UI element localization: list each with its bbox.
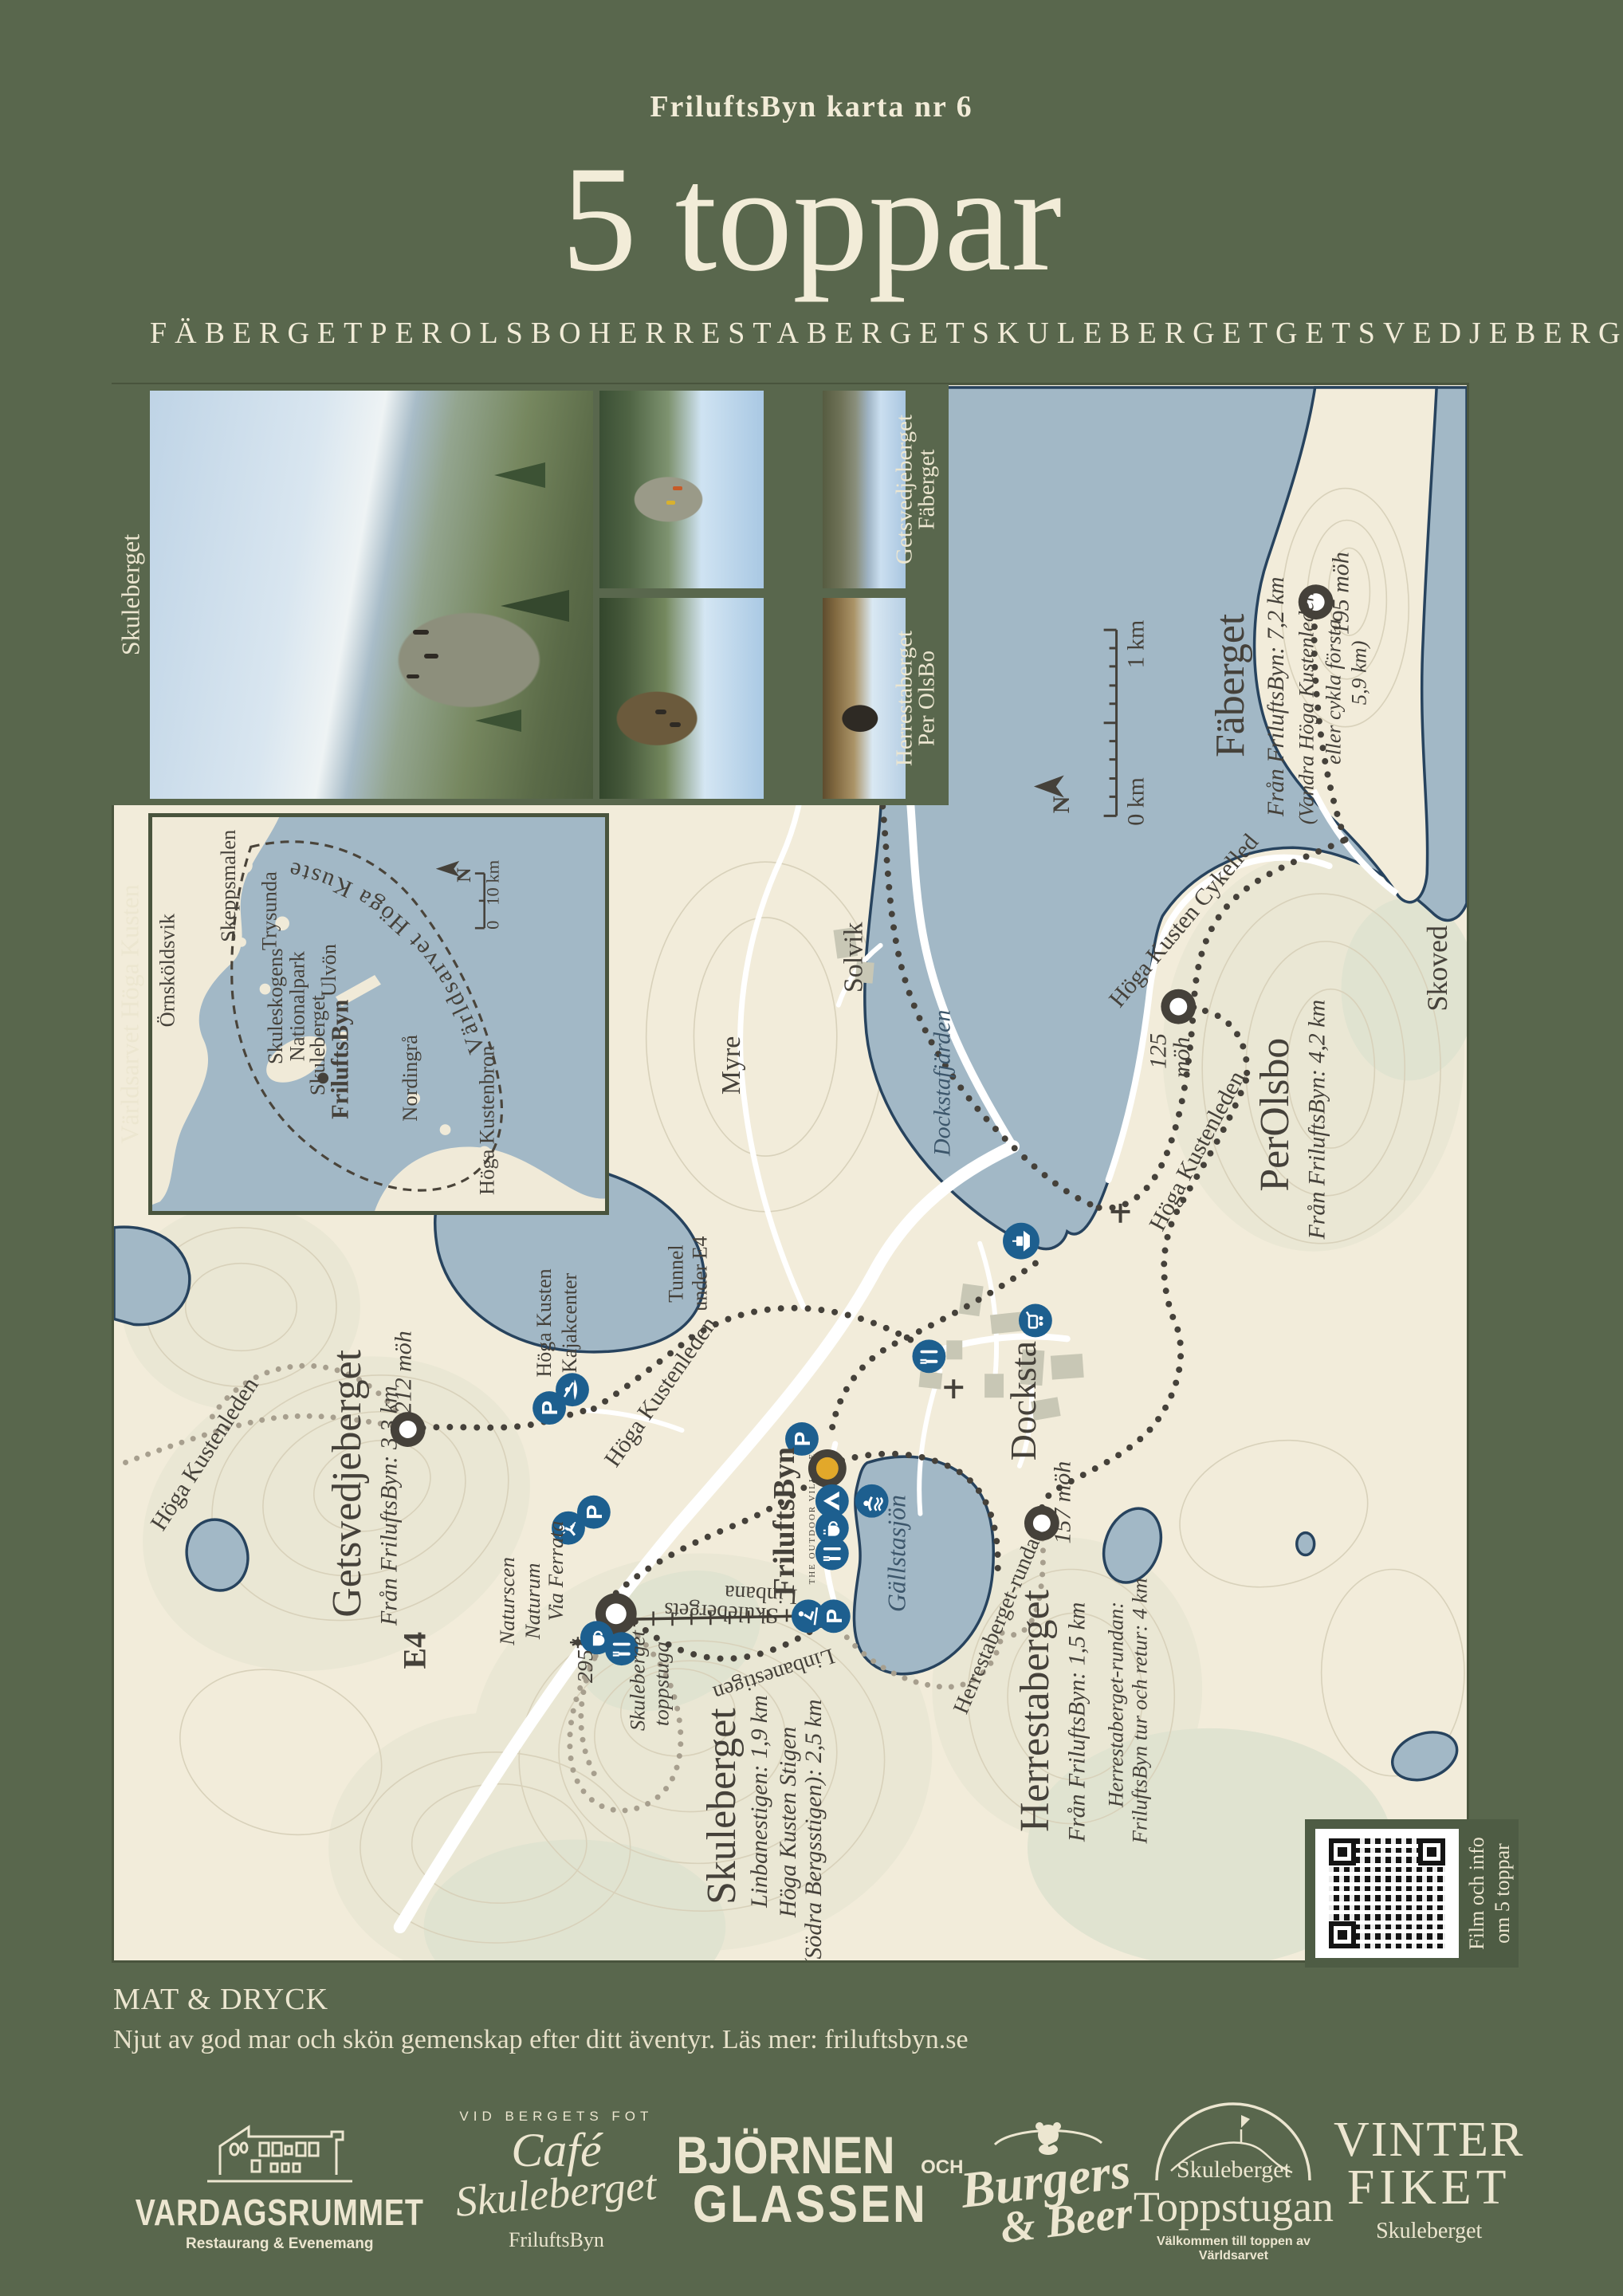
people-silhouette (655, 710, 666, 714)
label-kajak1: Höga Kusten (532, 1268, 556, 1377)
qr-caption-line2: om 5 toppar (1491, 1843, 1515, 1944)
label-herrestaberget-loop2: FriluftsByn tur och retur: 4 km (1127, 1578, 1151, 1844)
logo-cafe-arc: VID BERGETS FOT (459, 2109, 653, 2125)
photo-getsvedjeberget (599, 391, 764, 588)
label-skuleberget-info2: Höga Kusten Stigen (775, 1727, 801, 1918)
peak-name-getsvedjeberget: GETSVEDJEBERGET (1275, 316, 1623, 351)
logo-cafe-script2: Skuleberget (454, 2162, 659, 2224)
logo-toppstugan-name: Toppstugan (1134, 2184, 1334, 2230)
logo-bjornen-line2: GLASSEN (693, 2179, 928, 2228)
label-perolsbo: PerOlsbo (1252, 1038, 1298, 1192)
sponsor-logos: VARDAGSRUMMET Restaurang & Evenemang VID… (104, 2081, 1519, 2280)
label-herrestaberget-dist: Från FriluftsByn: 1,5 km (1064, 1602, 1091, 1843)
label-kajak2: Kajakcenter (558, 1272, 581, 1373)
logo-toppstugan: Skuleberget Toppstugan Välkommen till to… (1134, 2097, 1334, 2263)
label-e4: E4 (397, 1632, 433, 1669)
svg-text:P: P (537, 1401, 562, 1416)
label-perolsbo-elev2: möh (1169, 1037, 1195, 1078)
label-herrestaberget: Herrestaberget (1012, 1589, 1058, 1832)
label-perolsbo-elev1: 125 (1145, 1033, 1171, 1069)
label-skuleberget-info1: Linbanestigen: 1,9 km (746, 1695, 772, 1909)
peak-name-row: FÄBERGET PEROLSBO HERRESTABERGET SKULEBE… (150, 316, 1473, 351)
hiker-silhouette (413, 630, 429, 635)
logo-vardagsrummet: VARDAGSRUMMET Restaurang & Evenemang (104, 2108, 455, 2253)
restaurant-icon (815, 1537, 849, 1571)
tree-silhouette (501, 590, 569, 622)
label-faberget-dist: Från FriluftsByn: 7,2 km (1263, 577, 1289, 818)
peak-name-perolsbo: PEROLSBO (370, 316, 588, 351)
tree-silhouette (475, 710, 521, 732)
inset-label-nordingra: Nordingrå (398, 1035, 422, 1122)
label-naturscen1: Naturscen (495, 1557, 519, 1646)
logo-burgers-beer: Burgers & Beer (963, 2117, 1133, 2243)
logo-vardagsrummet-name: VARDAGSRUMMET (136, 2191, 424, 2234)
logo-toppstugan-top: Skuleberget (1177, 2156, 1291, 2184)
poster: { "poster": { "kicker": "FriluftsByn kar… (0, 0, 1623, 2296)
label-friluftsbyn: FriluftsByn (768, 1447, 801, 1596)
inset-map-svg: Världsarvet Höga Kusten N 10 km 0 Örnskö… (152, 817, 605, 1211)
inset-overview: Världsarvet Höga Kusten Världsarvet Höga… (112, 813, 609, 1217)
label-herrestaberget-elev: 157 möh (1050, 1461, 1076, 1544)
photo-label-skuleberget: Skuleberget (116, 534, 146, 655)
label-faberget-note1: (Vandra Höga Kustenleden (1295, 591, 1318, 824)
logo-toppstugan-tagline: Välkommen till toppen av Världsarvet (1134, 2235, 1334, 2263)
logo-vinterfiket: VINTER FIKET Skuleberget (1334, 2117, 1524, 2244)
inset-label-ulvon: Ulvön (316, 944, 340, 997)
inset-side-label: Världsarvet Höga Kusten (116, 884, 145, 1143)
inset-map: Världsarvet Höga Kusten N 10 km 0 Örnskö… (148, 813, 609, 1215)
label-toppstuga2: toppstuga (650, 1641, 674, 1726)
people-silhouette (670, 722, 681, 727)
parking-icon: P (817, 1599, 851, 1633)
qr-finder (1329, 1921, 1356, 1948)
inset-label-skuleskogens1: Skuleskogens (263, 948, 287, 1063)
climber-silhouette (673, 486, 682, 490)
inset-label-skeppsmalen: Skeppsmalen (216, 830, 240, 942)
logo-bjornen-och-glassen: BJÖRNEN OCH GLASSEN (657, 2133, 963, 2228)
qr-finder (1418, 1838, 1445, 1866)
label-myre: Myre (717, 1036, 746, 1095)
store-icon (1019, 1304, 1052, 1338)
logo-vardagsrummet-tagline: Restaurang & Evenemang (186, 2235, 373, 2253)
ferry-icon (1003, 1223, 1039, 1260)
label-tunnel2: under E4 (688, 1236, 711, 1311)
vardagsrummet-building-icon (204, 2108, 356, 2191)
inset-label-ornskoldsvik: Örnsköldsvik (155, 913, 179, 1027)
logo-vinterfiket-line2: FIKET (1347, 2163, 1511, 2212)
footer-heading: MAT & DRYCK (113, 1982, 328, 2017)
logo-cafe-skuleberget: VID BERGETS FOT Café Skuleberget Friluft… (455, 2109, 657, 2252)
label-friluftsbyn-sub: THE OUTDOOR VILLAGE (808, 1453, 817, 1584)
hiker-silhouette (424, 654, 438, 659)
label-skuleberget: Skuleberget (699, 1708, 745, 1905)
label-herrestaberget-loop1: Herrestaberget-rundan: (1104, 1602, 1128, 1808)
logo-vinterfiket-sub: Skuleberget (1376, 2219, 1482, 2244)
label-tunnel1: Tunnel (664, 1244, 687, 1303)
marker-perolsbo (1161, 989, 1196, 1024)
label-dockstafjarden: Dockstafjärden (929, 1010, 955, 1157)
qr-finder (1329, 1838, 1356, 1866)
label-skuleberget-info3: (Södra Bergsstigen): 2,5 km (800, 1699, 827, 1960)
peak-name-skuleberget: SKULEBERGET (973, 316, 1275, 351)
label-solvik: Solvik (839, 922, 869, 993)
inset-label-friluftsbyn: FriluftsByn (327, 1000, 354, 1119)
qr-panel: Film och info om 5 toppar (1305, 1819, 1519, 1968)
footer-body: Njut av god mar och skön gemenskap efter… (113, 2025, 969, 2055)
logo-cafe-sub: FriluftsByn (509, 2228, 604, 2252)
logo-vinterfiket-line1: VINTER (1334, 2117, 1524, 2163)
inset-label-trysunda: Trysunda (257, 871, 281, 950)
label-faberget-note2: eller cykla första (1322, 619, 1346, 765)
peak-name-faberget: FÄBERGET (150, 316, 370, 351)
inset-scale-min: 0 (482, 921, 502, 930)
hiker-silhouette (407, 674, 419, 678)
qr-code (1329, 1838, 1445, 1948)
inset-scale-max: 10 km (482, 859, 502, 905)
qr-card (1315, 1829, 1459, 1958)
map-north-label: N (1048, 796, 1075, 813)
photo-skuleberget (150, 391, 593, 799)
logo-cafe-script1: Café (511, 2129, 601, 2171)
label-skuleberget-elev: 295 (573, 1649, 598, 1683)
logo-bjornen-line1: BJÖRNEN (677, 2133, 895, 2177)
tree-silhouette (494, 462, 545, 488)
restaurant-icon (912, 1339, 945, 1373)
label-perolsbo-dist: Från FriluftsByn: 4,2 km (1304, 1000, 1330, 1240)
photo-label-perolsbo: Per OlsBo (914, 651, 941, 746)
svg-text:P: P (582, 1504, 607, 1520)
peak-name-herrestaberget: HERRESTABERGET (589, 316, 973, 351)
svg-text:P: P (822, 1609, 847, 1624)
photo-collage: Skuleberget Getsvedjeberget Herrestaberg… (112, 384, 949, 805)
label-viaferrata: Via Ferrata (544, 1521, 568, 1622)
label-getsvedjeberget-elev: 212 möh (391, 1331, 417, 1413)
water-pond (1297, 1533, 1315, 1555)
qr-caption-line1: Film och info (1465, 1837, 1489, 1950)
map-scale-min: 0 km (1122, 777, 1149, 826)
svg-text:P: P (790, 1432, 815, 1447)
label-getsvedjeberget-dist: Från FriluftsByn: 3,3 km (376, 1386, 403, 1626)
label-getsvedjeberget: Getsvedjeberget (324, 1349, 370, 1617)
label-docksta: Docksta (1003, 1341, 1043, 1461)
label-faberget-elev: 195 möh (1328, 552, 1354, 635)
climber-silhouette (666, 501, 675, 505)
poster-title: 5 toppar (0, 120, 1623, 319)
label-skoved: Skoved (1421, 926, 1453, 1012)
kayak-icon (556, 1373, 589, 1406)
label-faberget-note3: 5,9 km) (1346, 641, 1370, 706)
label-faberget: Fäberget (1208, 613, 1253, 757)
label-gallstasjon: Gällstasjön (882, 1495, 910, 1612)
label-toppstuga1: Skuleberget (626, 1630, 650, 1732)
inset-label-kustenbron: Höga Kustenbron (474, 1046, 498, 1195)
photo-label-faberget: Fäberget (914, 450, 941, 530)
photo-herrestaberget (599, 598, 764, 799)
label-naturscen2: Naturum (521, 1563, 544, 1641)
inset-north-label: N (452, 867, 475, 883)
map-scale-max: 1 km (1122, 620, 1149, 669)
